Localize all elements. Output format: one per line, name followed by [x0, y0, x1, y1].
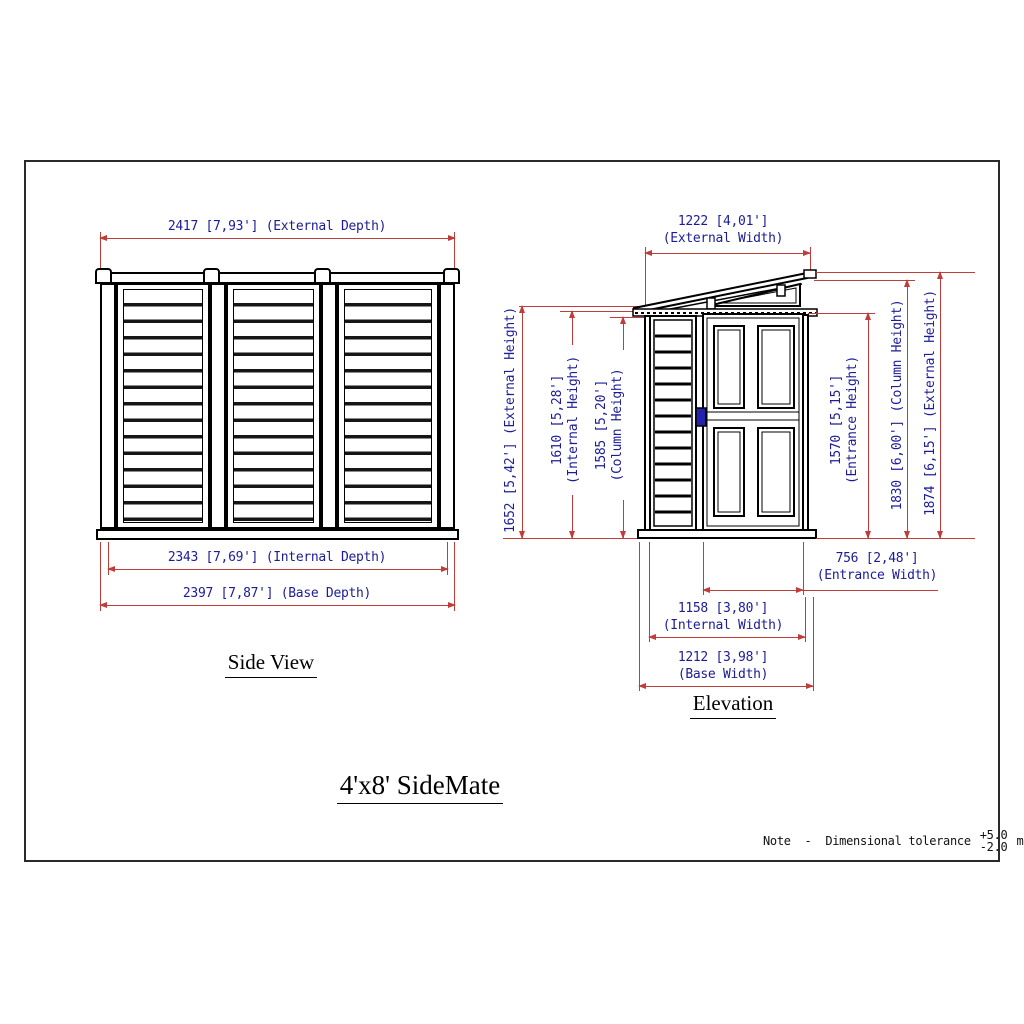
dim-column-height-right: 1830 [6,00'] (Column Height) — [890, 289, 906, 521]
wall-edge-right — [803, 315, 808, 530]
dim-base-depth: 2397 [7,87'] (Base Depth) — [127, 586, 427, 602]
drawing-sheet: 2417 [7,93'] (External Depth) 2343 [7,69… — [0, 0, 1024, 1024]
dim-external-height-left: 1652 [5,42'] (External Height) — [503, 304, 519, 536]
dim-external-width-value: 1222 [4,01'] — [593, 214, 853, 230]
dim-column-height-left: 1585 [5,20'] (Column Height) — [594, 350, 626, 500]
extension-line — [816, 538, 975, 539]
dim-internal-width-value: 1158 [3,80'] — [593, 601, 853, 617]
extension-line — [100, 542, 101, 611]
louver-slats — [344, 289, 432, 523]
note-unit: mm. — [1016, 834, 1024, 848]
sideview-louver-panel — [337, 283, 439, 529]
tolerance-note: Note - Dimensional tolerance +5.0 -2.0 m… — [763, 829, 1024, 853]
sideview-column — [210, 283, 226, 529]
extension-line — [454, 542, 455, 611]
drawing-title: 4'x8' SideMate — [270, 770, 570, 804]
dim-entrance-height: 1570 [5,15'] (Entrance Height) — [829, 345, 861, 495]
dimension-line-internal-width — [649, 637, 805, 638]
dim-base-width-label: (Base Width) — [593, 667, 853, 683]
leader-line — [803, 590, 938, 591]
dimension-line-entrance-width — [703, 590, 803, 591]
louver-slats — [123, 289, 203, 523]
sideview-roof-cap — [203, 268, 220, 284]
sideview-caption: Side View — [171, 650, 371, 678]
dim-external-height-right: 1874 [6,15'] (External Height) — [923, 287, 939, 519]
sideview-column — [321, 283, 337, 529]
sideview-column — [100, 283, 116, 529]
dimension-line-external-depth — [100, 238, 455, 239]
sideview-base-strip — [96, 529, 459, 540]
dim-internal-width-label: (Internal Width) — [593, 618, 853, 634]
elevation-drawing — [630, 262, 820, 544]
dimension-line-external-width — [645, 253, 810, 254]
sideview-louver-panel — [226, 283, 321, 529]
dimension-line-external-height-right — [940, 272, 941, 538]
dimension-line-external-height-left — [522, 306, 523, 538]
dimension-line-internal-depth — [108, 569, 448, 570]
dim-entrance-width-value: 756 [2,48'] — [777, 551, 977, 567]
dimension-line-column-height-right — [907, 280, 908, 538]
dim-base-width-value: 1212 [3,98'] — [593, 650, 853, 666]
roof-connector — [777, 285, 785, 296]
dim-internal-depth: 2343 [7,69'] (Internal Depth) — [127, 550, 427, 566]
dimension-line-base-depth — [100, 605, 455, 606]
dimension-line-base-width — [639, 686, 813, 687]
tolerance-values: +5.0 -2.0 — [980, 829, 1008, 853]
sideview-roof-cap — [443, 268, 460, 284]
roof-peak-cap — [804, 270, 816, 278]
dim-entrance-width-label: (Entrance Width) — [777, 568, 977, 584]
note-label: Note - Dimensional tolerance — [763, 834, 971, 848]
sideview-column — [439, 283, 455, 529]
sideview-roof-cap — [314, 268, 331, 284]
door-handle-icon — [696, 408, 706, 426]
dim-external-width-label: (External Width) — [593, 231, 853, 247]
sideview-roof-cap — [95, 268, 112, 284]
extension-line — [816, 272, 975, 273]
base-strip — [638, 530, 816, 538]
sideview-louver-panel — [116, 283, 210, 529]
dimension-line-entrance-height — [868, 313, 869, 538]
roof-connector — [707, 298, 715, 309]
elevation-caption: Elevation — [633, 691, 833, 719]
louver-slats — [233, 289, 314, 523]
dim-external-depth: 2417 [7,93'] (External Depth) — [127, 219, 427, 235]
louver-panel — [650, 316, 696, 530]
extension-line — [814, 280, 915, 281]
dim-internal-height: 1610 [5,28'] (Internal Height) — [550, 345, 582, 495]
